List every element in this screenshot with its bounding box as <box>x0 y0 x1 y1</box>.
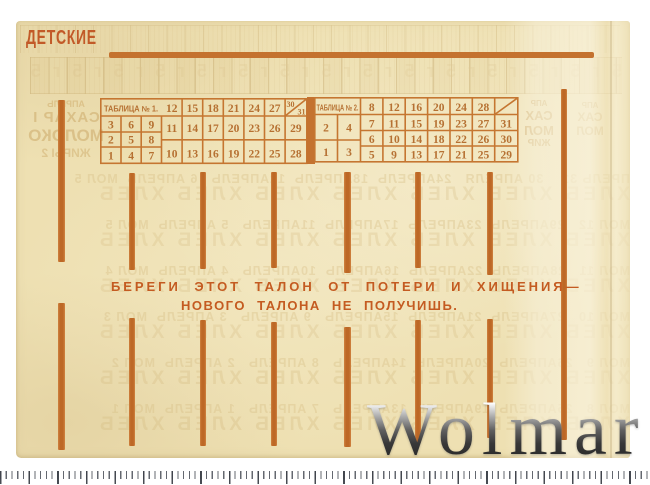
svg-text:19: 19 <box>228 149 240 161</box>
svg-text:28: 28 <box>290 149 302 161</box>
svg-text:3: 3 <box>346 147 352 159</box>
svg-text:16: 16 <box>411 102 423 114</box>
svg-text:23: 23 <box>248 123 260 135</box>
svg-text:7: 7 <box>369 118 375 130</box>
svg-text:23: 23 <box>455 118 467 130</box>
svg-text:2: 2 <box>108 135 114 147</box>
svg-text:13: 13 <box>411 150 423 162</box>
svg-text:27: 27 <box>269 103 281 115</box>
svg-text:13: 13 <box>187 149 199 161</box>
svg-text:27: 27 <box>478 118 490 130</box>
svg-text:2: 2 <box>323 123 329 135</box>
svg-text:21: 21 <box>228 103 240 115</box>
svg-text:12: 12 <box>166 103 178 115</box>
svg-text:24: 24 <box>248 103 260 115</box>
svg-text:20: 20 <box>228 123 240 135</box>
svg-text:25: 25 <box>478 150 490 162</box>
svg-text:17: 17 <box>207 123 219 135</box>
svg-text:14: 14 <box>187 123 199 135</box>
svg-text:31: 31 <box>298 108 306 117</box>
svg-text:8: 8 <box>369 102 375 114</box>
svg-text:16: 16 <box>207 149 219 161</box>
svg-text:15: 15 <box>187 103 199 115</box>
svg-text:22: 22 <box>248 149 260 161</box>
svg-text:18: 18 <box>207 103 219 115</box>
svg-text:6: 6 <box>128 120 134 132</box>
svg-text:7: 7 <box>149 151 155 163</box>
svg-text:29: 29 <box>290 123 302 135</box>
svg-text:4: 4 <box>346 123 352 135</box>
svg-text:26: 26 <box>478 134 490 146</box>
svg-text:24: 24 <box>455 102 467 114</box>
svg-text:15: 15 <box>411 118 423 130</box>
svg-text:19: 19 <box>433 118 445 130</box>
svg-text:11: 11 <box>166 123 177 135</box>
svg-text:8: 8 <box>149 135 155 147</box>
svg-text:9: 9 <box>391 150 397 162</box>
svg-text:12: 12 <box>388 102 400 114</box>
svg-text:22: 22 <box>455 134 467 146</box>
svg-text:29: 29 <box>500 150 512 162</box>
svg-text:25: 25 <box>269 149 281 161</box>
svg-text:10: 10 <box>388 134 400 146</box>
svg-text:3: 3 <box>108 120 114 132</box>
svg-text:6: 6 <box>369 134 375 146</box>
svg-text:1: 1 <box>323 147 329 159</box>
svg-text:11: 11 <box>389 118 400 130</box>
svg-text:5: 5 <box>369 150 375 162</box>
svg-text:31: 31 <box>500 118 512 130</box>
svg-text:21: 21 <box>455 150 467 162</box>
svg-text:ТАБЛИЦА № 1.: ТАБЛИЦА № 1. <box>104 105 158 114</box>
svg-text:9: 9 <box>149 120 155 132</box>
svg-text:17: 17 <box>433 150 445 162</box>
svg-text:10: 10 <box>166 149 178 161</box>
svg-text:ТАБЛИЦА № 2.: ТАБЛИЦА № 2. <box>317 104 359 113</box>
svg-text:30: 30 <box>287 100 295 109</box>
svg-text:18: 18 <box>433 134 445 146</box>
svg-text:20: 20 <box>433 102 445 114</box>
svg-text:28: 28 <box>478 102 490 114</box>
svg-text:5: 5 <box>128 135 134 147</box>
svg-text:4: 4 <box>128 151 134 163</box>
svg-text:30: 30 <box>500 134 512 146</box>
svg-text:26: 26 <box>269 123 281 135</box>
svg-text:14: 14 <box>411 134 423 146</box>
svg-text:1: 1 <box>108 151 114 163</box>
